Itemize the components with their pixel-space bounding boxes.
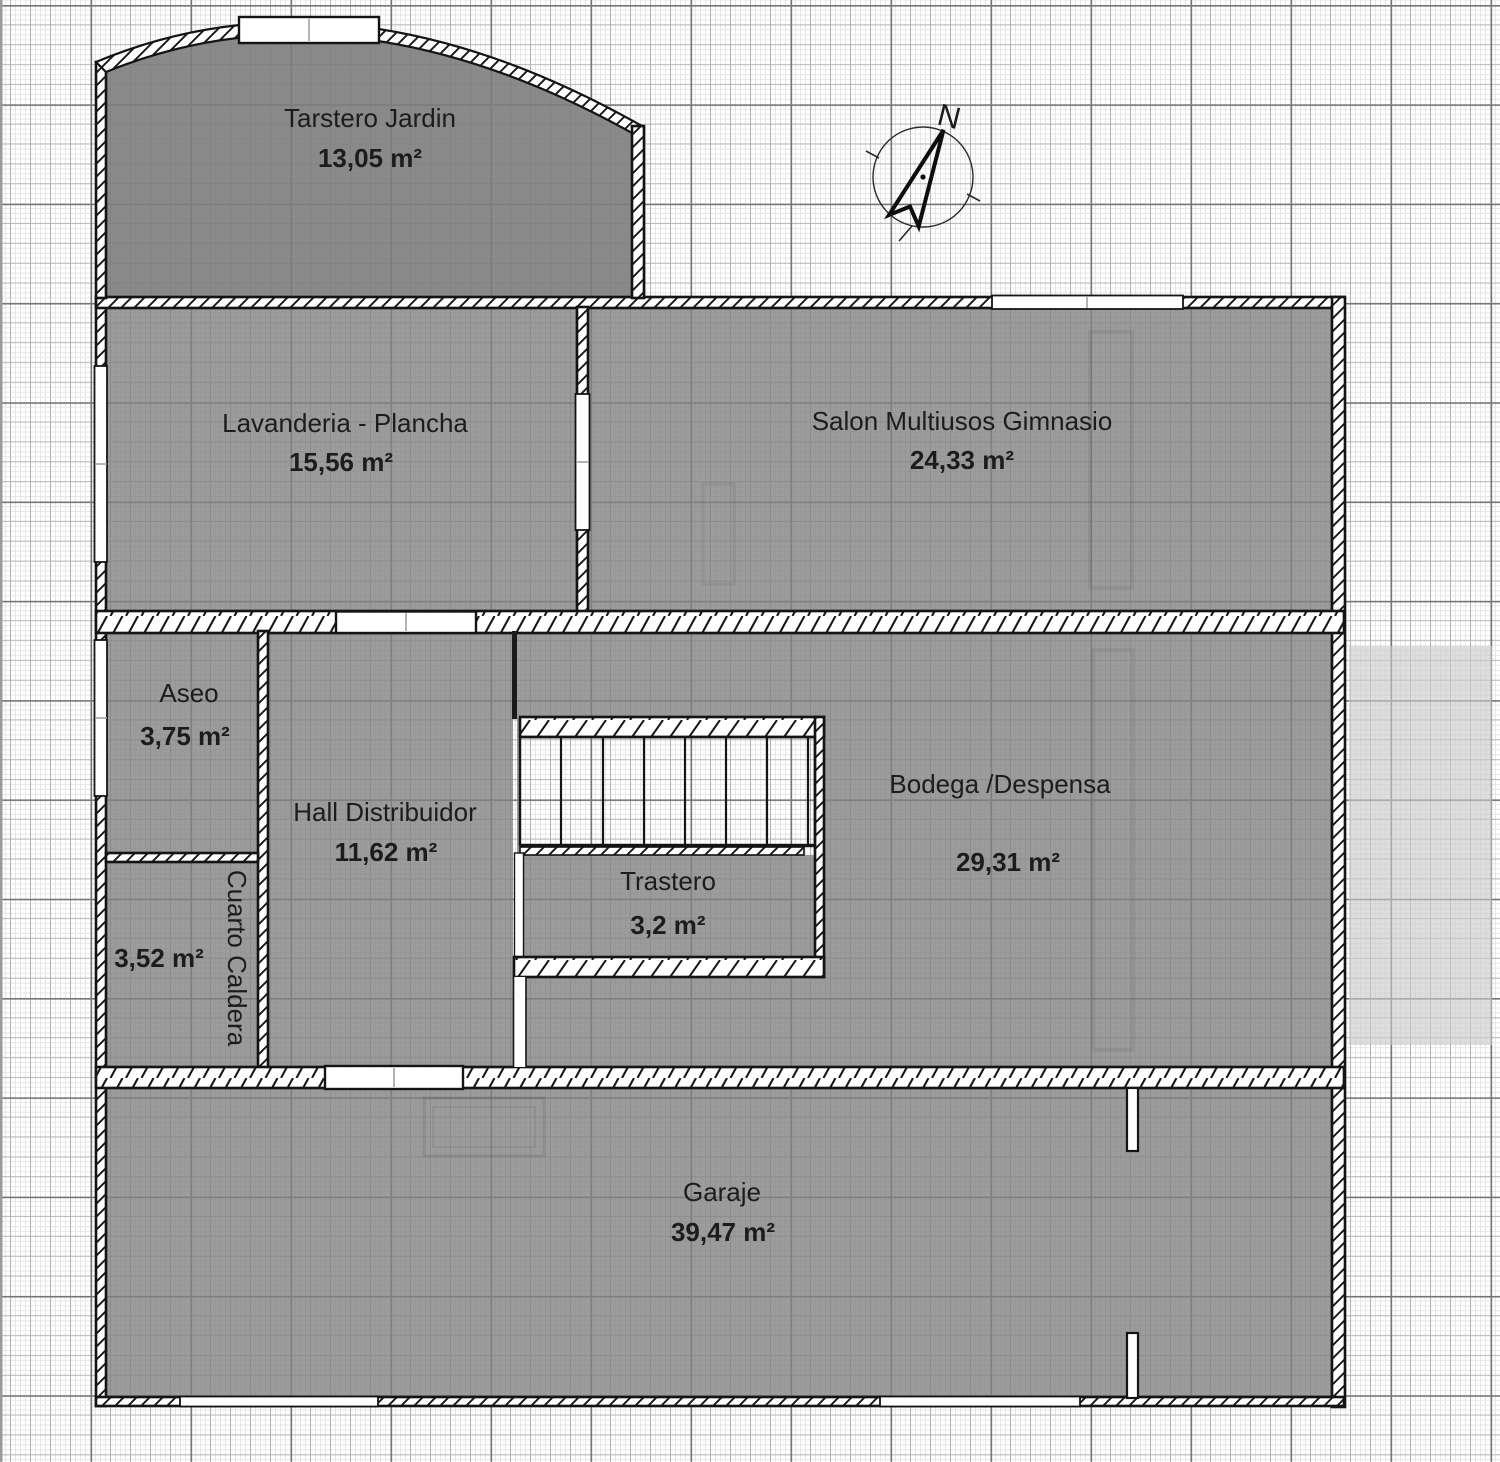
svg-text:13,05 m²: 13,05 m² [318, 143, 422, 173]
svg-text:Cuarto Caldera: Cuarto Caldera [222, 870, 252, 1047]
svg-text:Aseo: Aseo [159, 678, 218, 708]
svg-text:24,33 m²: 24,33 m² [910, 445, 1014, 475]
svg-text:Bodega /Despensa: Bodega /Despensa [889, 769, 1111, 799]
svg-text:39,47 m²: 39,47 m² [671, 1217, 775, 1247]
svg-text:Salon Multiusos Gimnasio: Salon Multiusos Gimnasio [812, 406, 1113, 436]
svg-text:3,75 m²: 3,75 m² [140, 721, 230, 751]
svg-text:Trastero: Trastero [620, 866, 716, 896]
svg-text:11,62 m²: 11,62 m² [335, 837, 438, 867]
svg-text:29,31 m²: 29,31 m² [956, 847, 1060, 877]
svg-text:3,52 m²: 3,52 m² [114, 943, 204, 973]
svg-text:Hall Distribuidor: Hall Distribuidor [293, 797, 477, 827]
svg-text:Tarstero Jardin: Tarstero Jardin [284, 103, 456, 133]
svg-text:15,56 m²: 15,56 m² [289, 447, 393, 477]
svg-text:Lavanderia - Plancha: Lavanderia - Plancha [222, 408, 468, 438]
svg-text:3,2 m²: 3,2 m² [630, 910, 705, 940]
svg-text:Garaje: Garaje [683, 1177, 761, 1207]
